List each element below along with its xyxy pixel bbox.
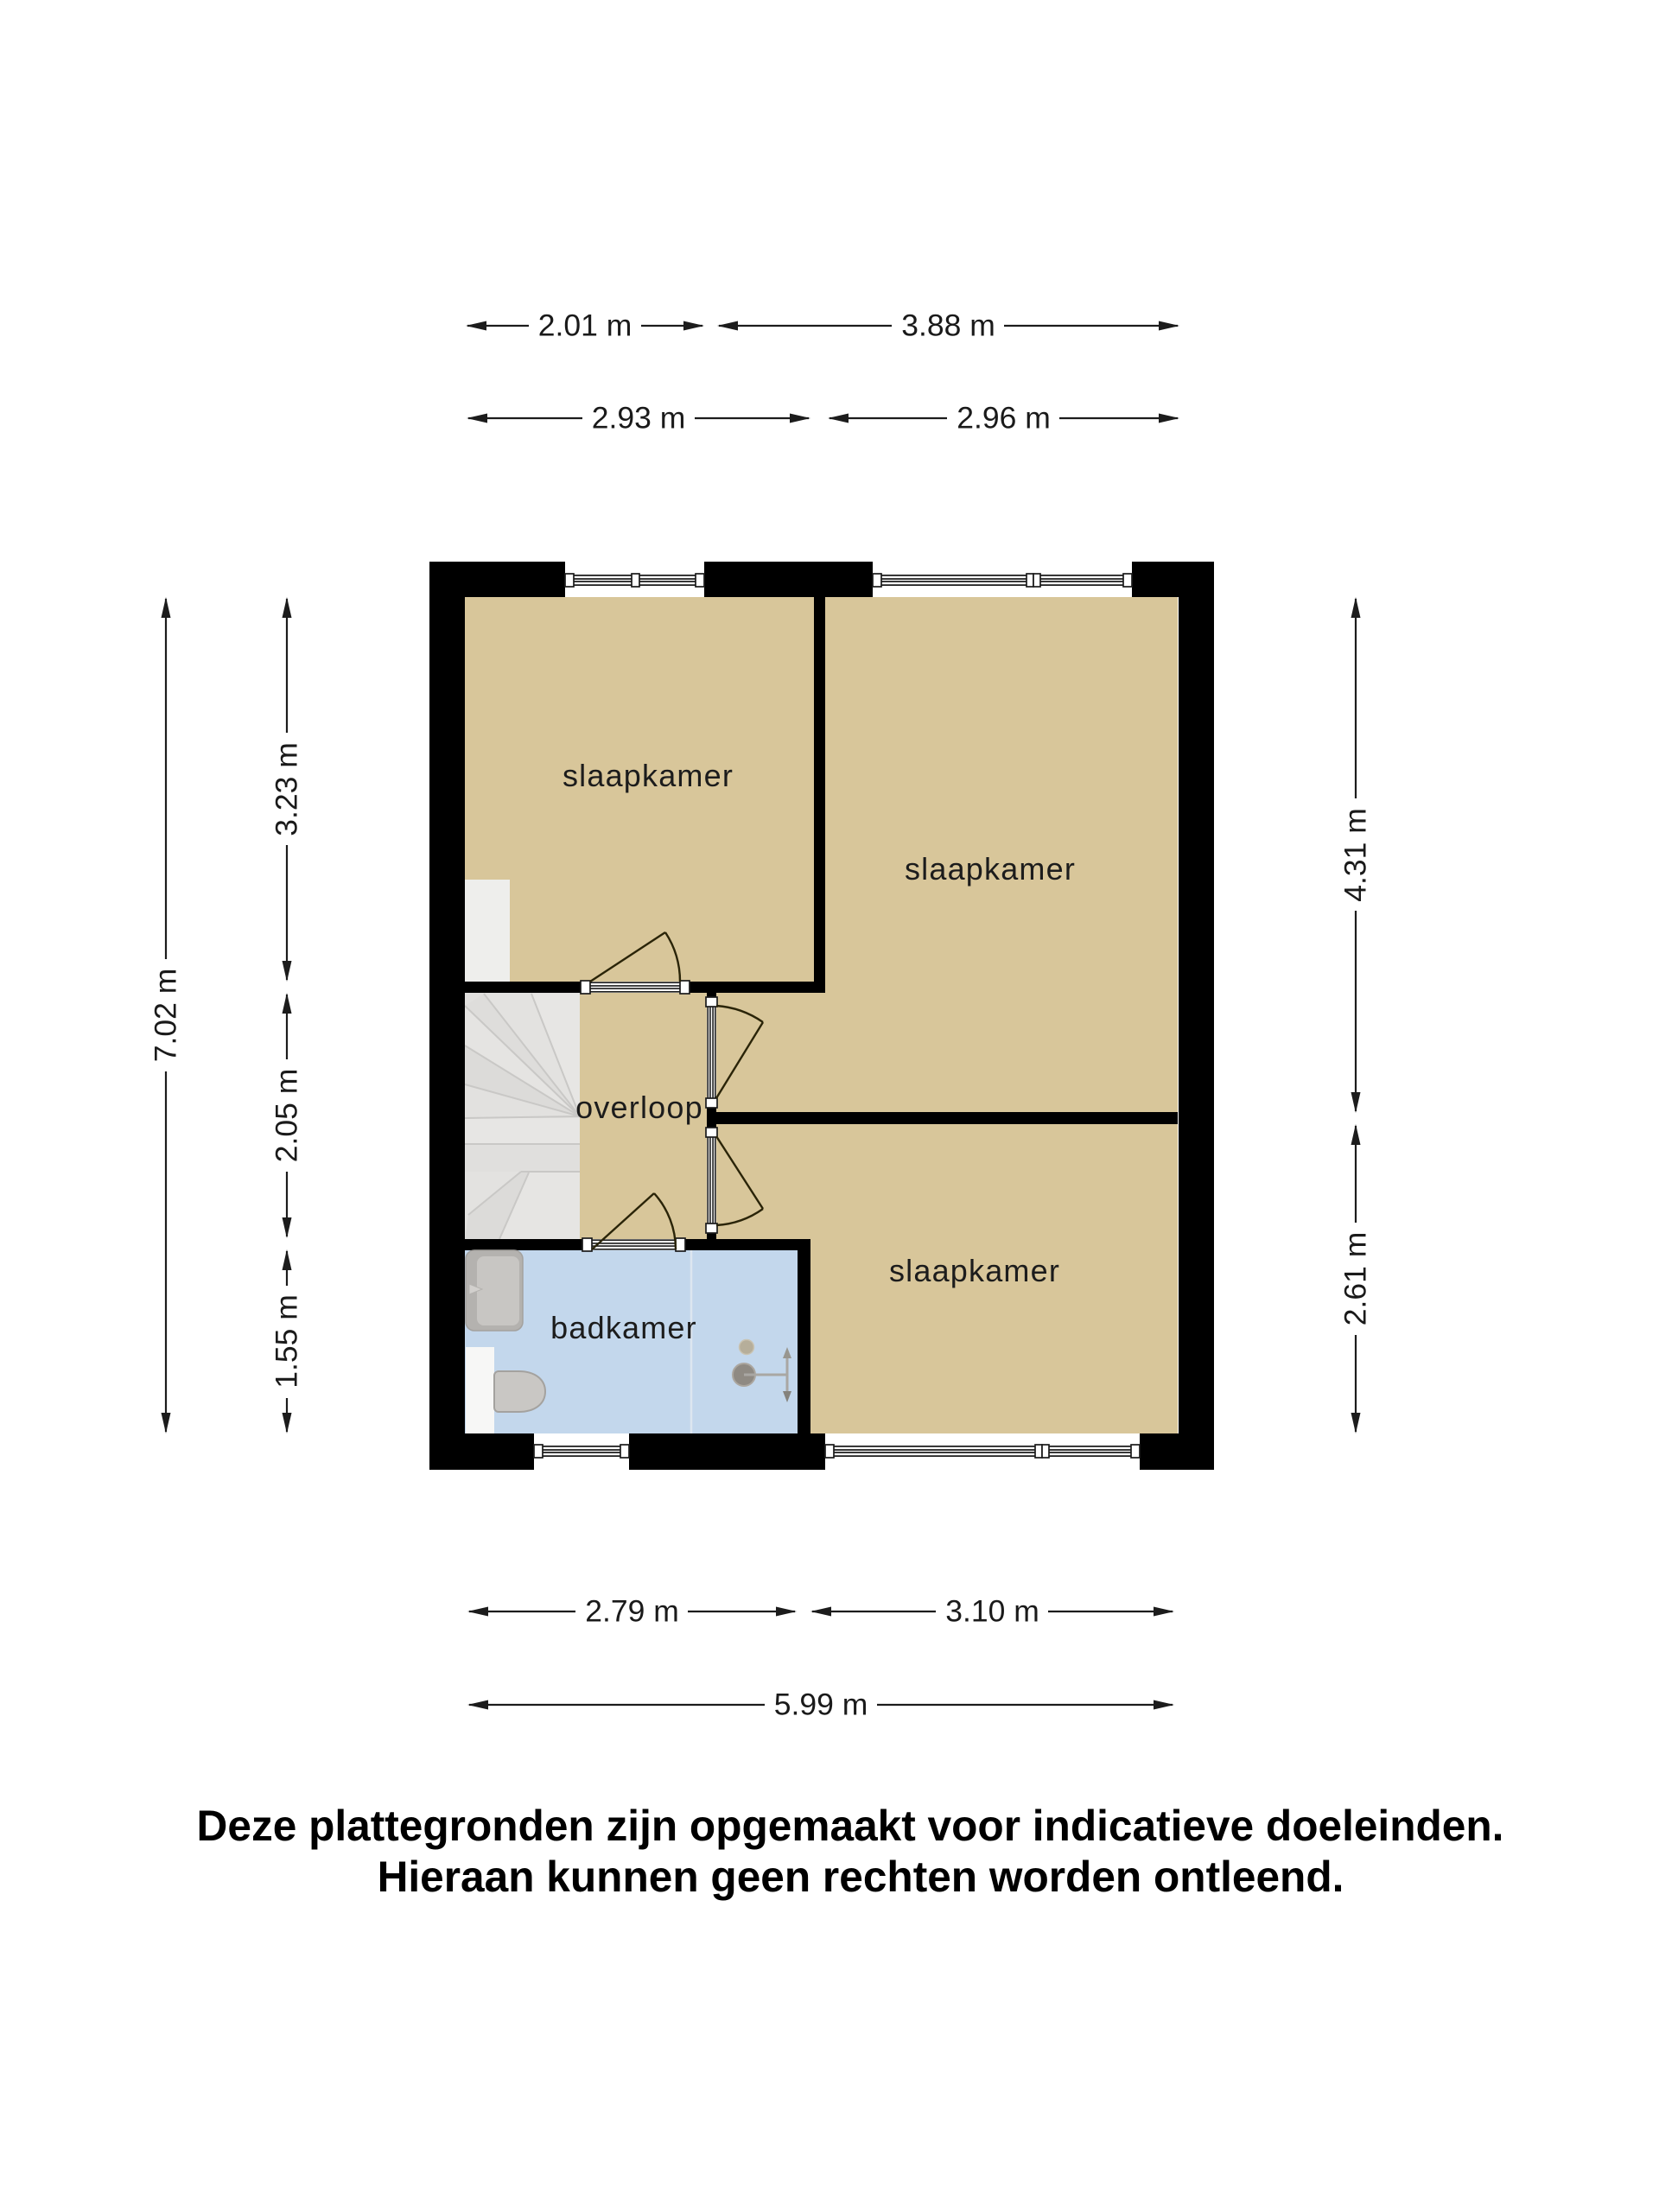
- svg-text:5.99 m: 5.99 m: [774, 1688, 868, 1722]
- svg-text:2.61 m: 2.61 m: [1338, 1232, 1373, 1326]
- svg-text:badkamer: badkamer: [550, 1310, 697, 1345]
- svg-text:Deze plattegronden zijn opgema: Deze plattegronden zijn opgemaakt voor i…: [197, 1802, 1504, 1850]
- svg-text:1.55 m: 1.55 m: [270, 1294, 304, 1389]
- svg-text:slaapkamer: slaapkamer: [889, 1253, 1060, 1288]
- svg-text:3.23 m: 3.23 m: [270, 742, 304, 836]
- svg-text:2.93 m: 2.93 m: [592, 401, 686, 435]
- svg-text:4.31 m: 4.31 m: [1338, 808, 1373, 902]
- svg-text:overloop: overloop: [575, 1090, 703, 1125]
- svg-text:slaapkamer: slaapkamer: [905, 851, 1076, 887]
- svg-text:2.05 m: 2.05 m: [270, 1069, 304, 1163]
- svg-text:2.79 m: 2.79 m: [585, 1594, 679, 1629]
- svg-text:2.01 m: 2.01 m: [538, 308, 632, 343]
- svg-text:Hieraan kunnen geen rechten wo: Hieraan kunnen geen rechten worden ontle…: [378, 1853, 1344, 1901]
- svg-text:2.96 m: 2.96 m: [957, 401, 1051, 435]
- svg-text:7.02 m: 7.02 m: [149, 969, 183, 1063]
- svg-text:slaapkamer: slaapkamer: [563, 758, 734, 793]
- svg-text:3.88 m: 3.88 m: [901, 308, 995, 343]
- svg-text:3.10 m: 3.10 m: [945, 1594, 1039, 1629]
